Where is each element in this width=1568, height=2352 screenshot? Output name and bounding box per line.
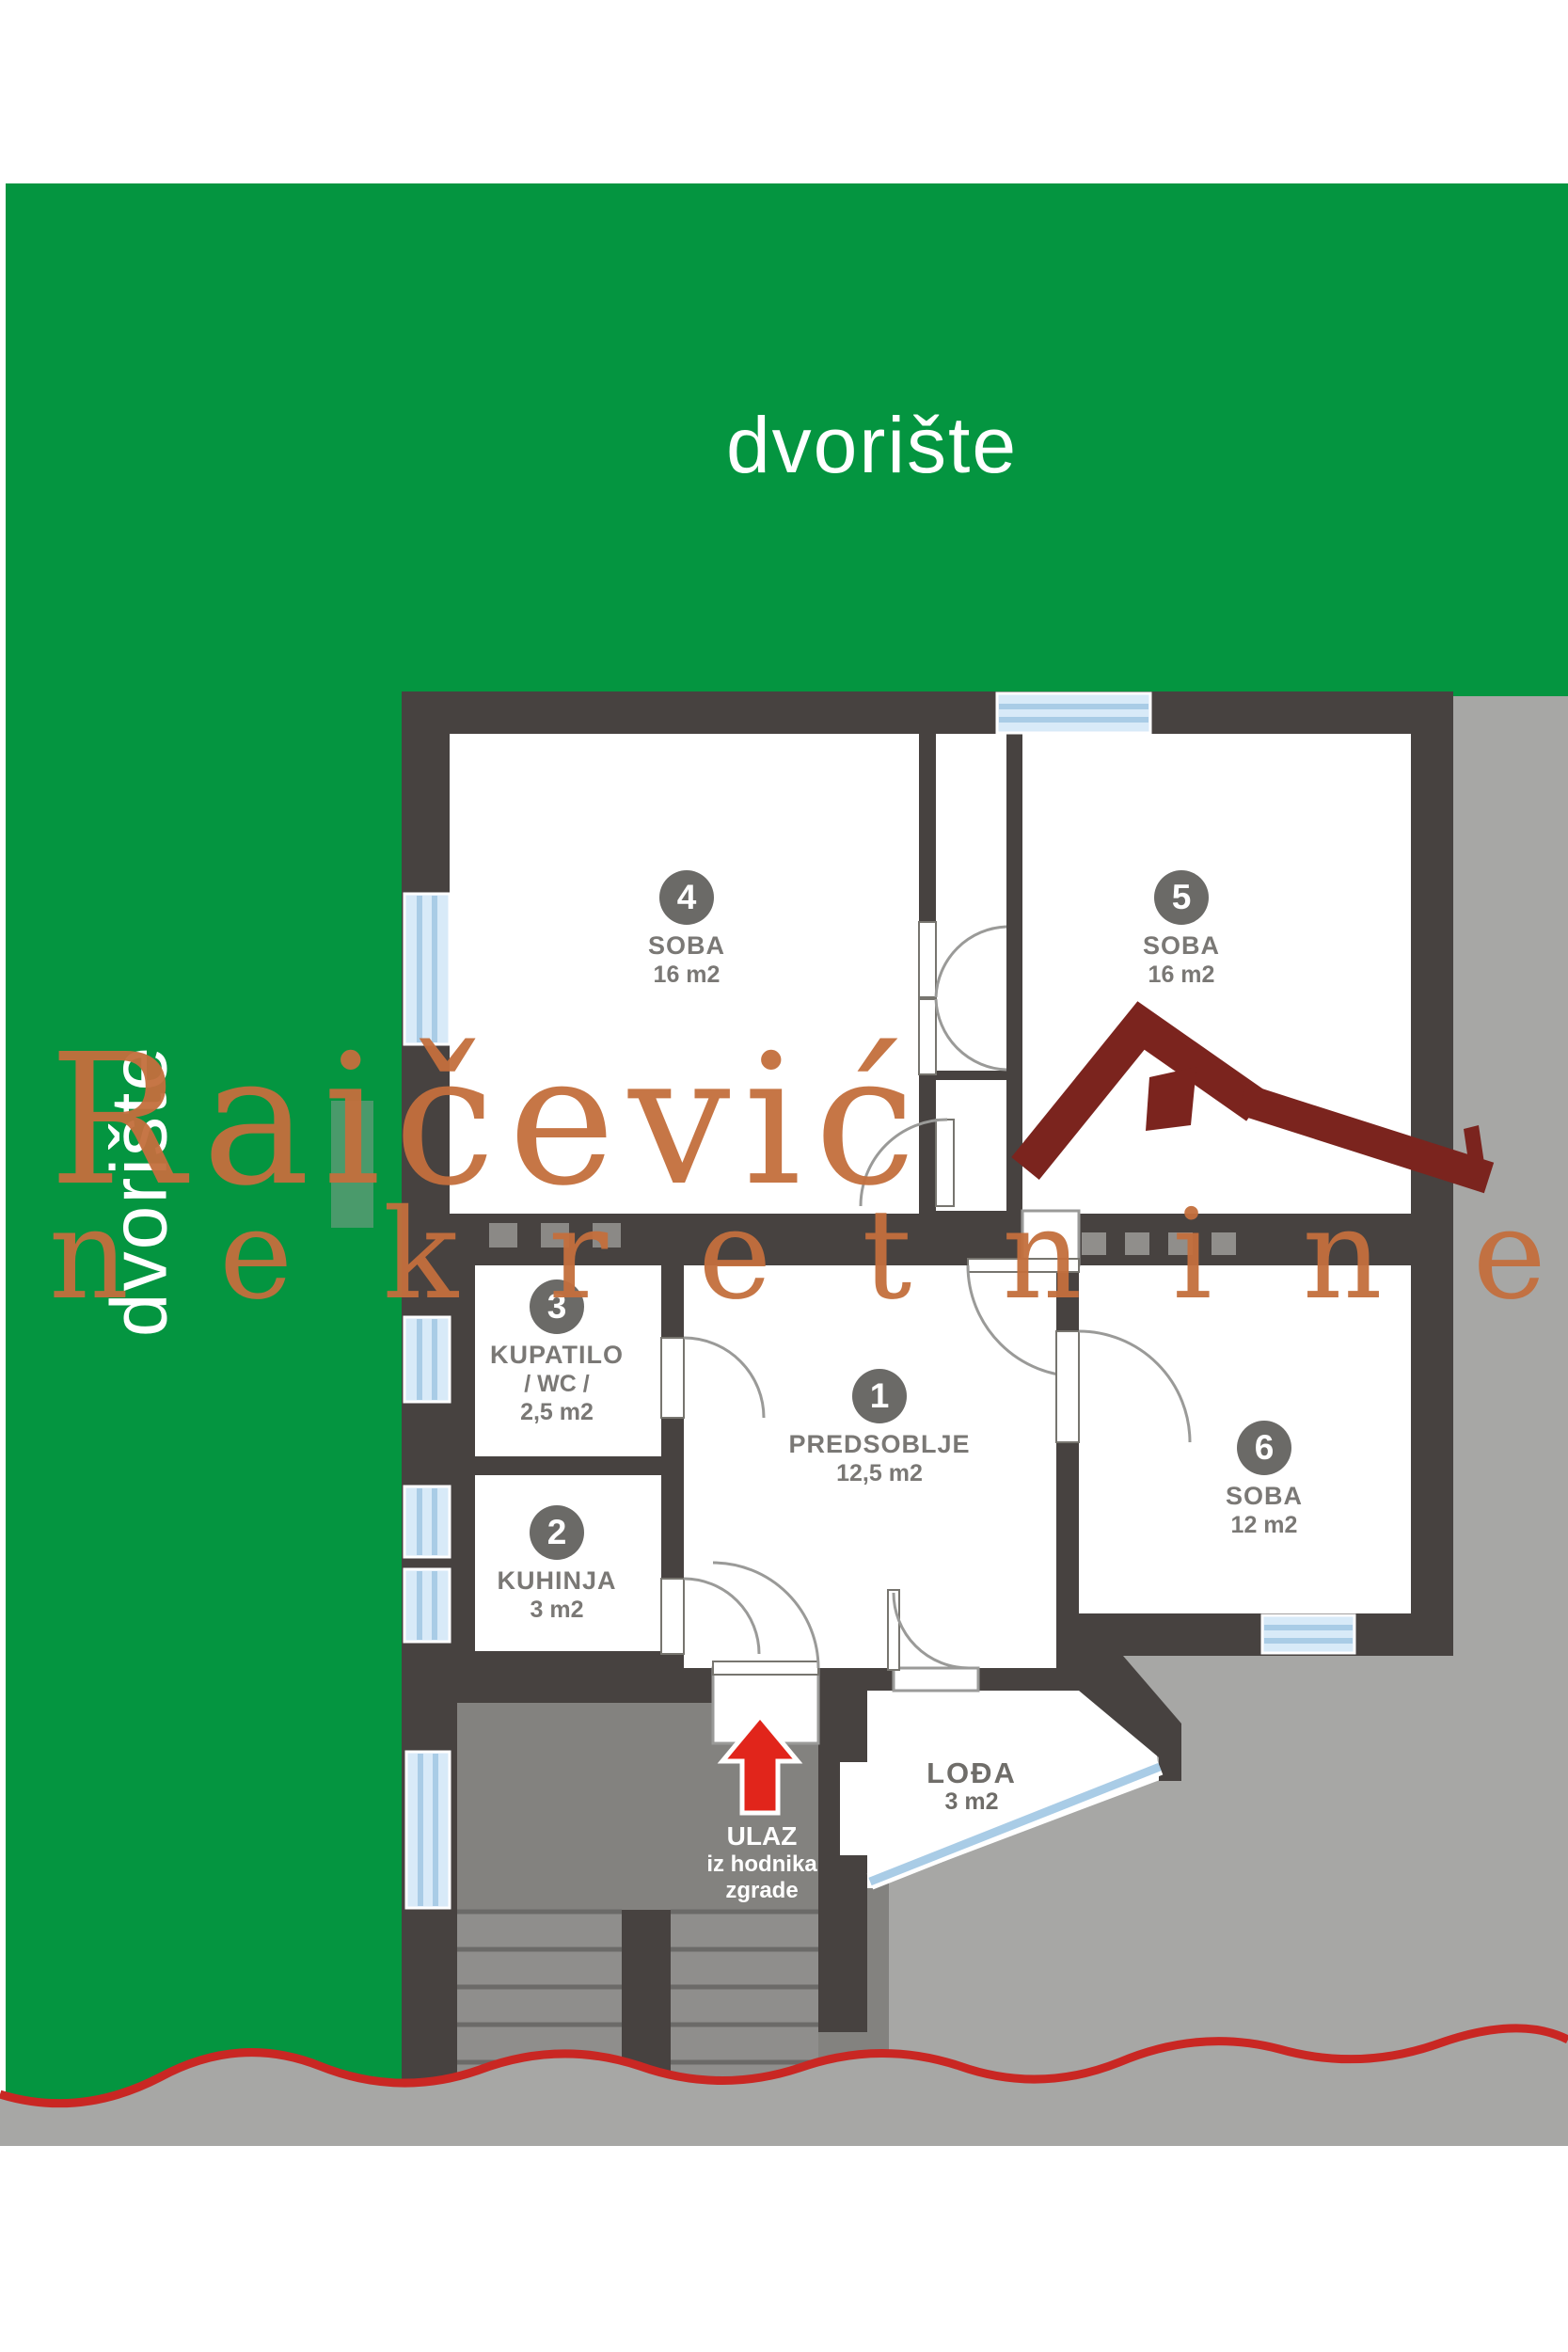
room-2-label: 2 KUHINJA 3 m2: [463, 1505, 651, 1624]
entrance-line3: zgrade: [687, 1878, 837, 1904]
entrance-label: ULAZ iz hodnika zgrade: [687, 1821, 837, 1904]
entrance-title: ULAZ: [687, 1821, 837, 1851]
loggia-area: 3 m2: [878, 1788, 1066, 1816]
bottom-margin: [0, 2146, 1568, 2352]
room-1-area: 12,5 m2: [767, 1459, 992, 1487]
window-kitchen-left-a: [404, 1486, 450, 1557]
room-5-label: 5 SOBA 16 m2: [1069, 870, 1294, 989]
window-top-wall: [997, 693, 1150, 733]
closet-door-upper-leaf: [919, 922, 936, 997]
room-2-name: KUHINJA: [463, 1566, 651, 1596]
room6-door-leaf: [1056, 1331, 1079, 1442]
room-4-name: SOBA: [574, 931, 800, 961]
yard-label-top: dvorište: [703, 400, 1041, 491]
room-3-sub: / WC /: [463, 1370, 651, 1398]
room-3-name: KUPATILO: [463, 1341, 651, 1370]
room-1-name: PREDSOBLJE: [767, 1430, 992, 1459]
room-5-name: SOBA: [1069, 931, 1294, 961]
entrance-line2: iz hodnika: [687, 1851, 837, 1878]
closet-divider: [936, 1071, 1006, 1080]
room-2-number-badge: 2: [530, 1505, 584, 1560]
room-4-area: 16 m2: [574, 961, 800, 989]
room-1-label: 1 PREDSOBLJE 12,5 m2: [767, 1369, 992, 1487]
room-3-area: 2,5 m2: [463, 1398, 651, 1426]
room-6-label: 6 SOBA 12 m2: [1151, 1421, 1377, 1539]
window-stairwell-left: [406, 1752, 450, 1908]
kitchen-door-leaf: [661, 1579, 684, 1654]
room-6-number-badge: 6: [1237, 1421, 1291, 1475]
bathroom-door-leaf: [661, 1338, 684, 1418]
room-6-area: 12 m2: [1151, 1511, 1377, 1539]
loggia-notch: [840, 1762, 867, 1855]
room-6-name: SOBA: [1151, 1482, 1377, 1511]
window-kitchen-left-b: [404, 1569, 450, 1642]
window-bathroom-left: [404, 1317, 450, 1402]
loggia-name: LOĐA: [878, 1758, 1066, 1788]
room-4-number-badge: 4: [659, 870, 714, 925]
room-2-area: 3 m2: [463, 1596, 651, 1624]
window-room6-bottom: [1262, 1615, 1354, 1653]
room-5-area: 16 m2: [1069, 961, 1294, 989]
room-4-label: 4 SOBA 16 m2: [574, 870, 800, 989]
room-5-number-badge: 5: [1154, 870, 1209, 925]
entrance-door-leaf: [713, 1661, 818, 1675]
loggia-door-opening: [894, 1668, 978, 1691]
watermark-line2: nekretnine: [49, 1193, 1568, 1317]
room-1-number-badge: 1: [852, 1369, 907, 1423]
loggia-label: LOĐA 3 m2: [878, 1752, 1066, 1816]
floor-plan-page: dvorište dvorište 4 SOBA 16 m2 5 SOBA 16…: [0, 0, 1568, 2352]
